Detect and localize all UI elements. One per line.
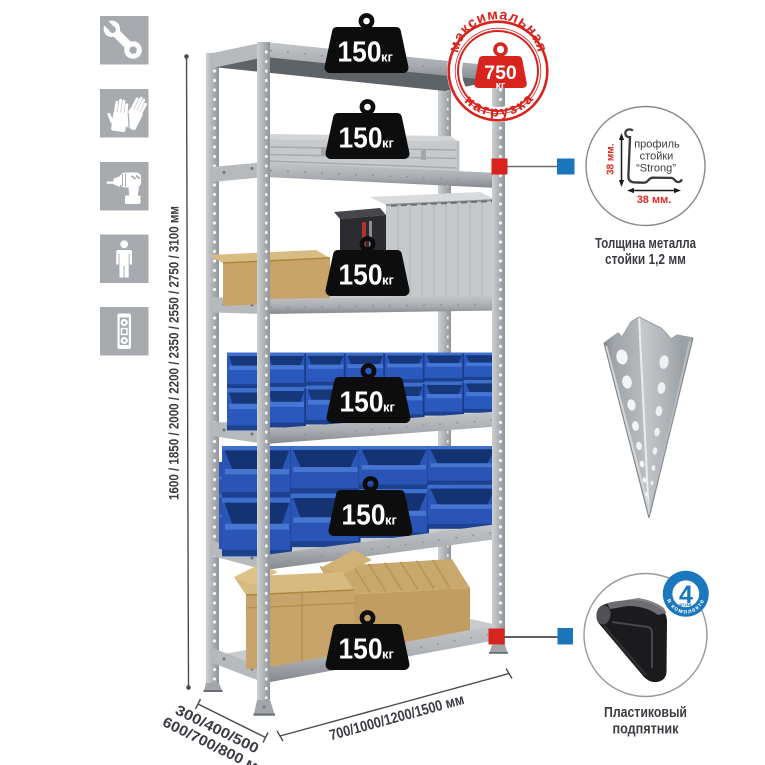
svg-text:Толщина металла: Толщина металла	[595, 236, 697, 252]
svg-text:подпятник: подпятник	[613, 722, 680, 738]
svg-text:стойки 1,2 мм: стойки 1,2 мм	[605, 252, 686, 268]
svg-text:1600 / 1850 / 2000 / 2200 / 23: 1600 / 1850 / 2000 / 2200 / 2350 / 2550 …	[167, 206, 182, 500]
svg-text:штуки: штуки	[679, 602, 692, 607]
svg-text:профиль: профиль	[634, 139, 680, 151]
svg-text:38 мм.: 38 мм.	[637, 194, 672, 206]
svg-text:38 мм.: 38 мм.	[606, 143, 617, 175]
svg-text:кг: кг	[496, 80, 506, 92]
svg-text:Пластиковый: Пластиковый	[604, 705, 687, 721]
svg-text:“Strong”: “Strong”	[636, 163, 676, 175]
svg-text:стойки: стойки	[640, 151, 674, 163]
